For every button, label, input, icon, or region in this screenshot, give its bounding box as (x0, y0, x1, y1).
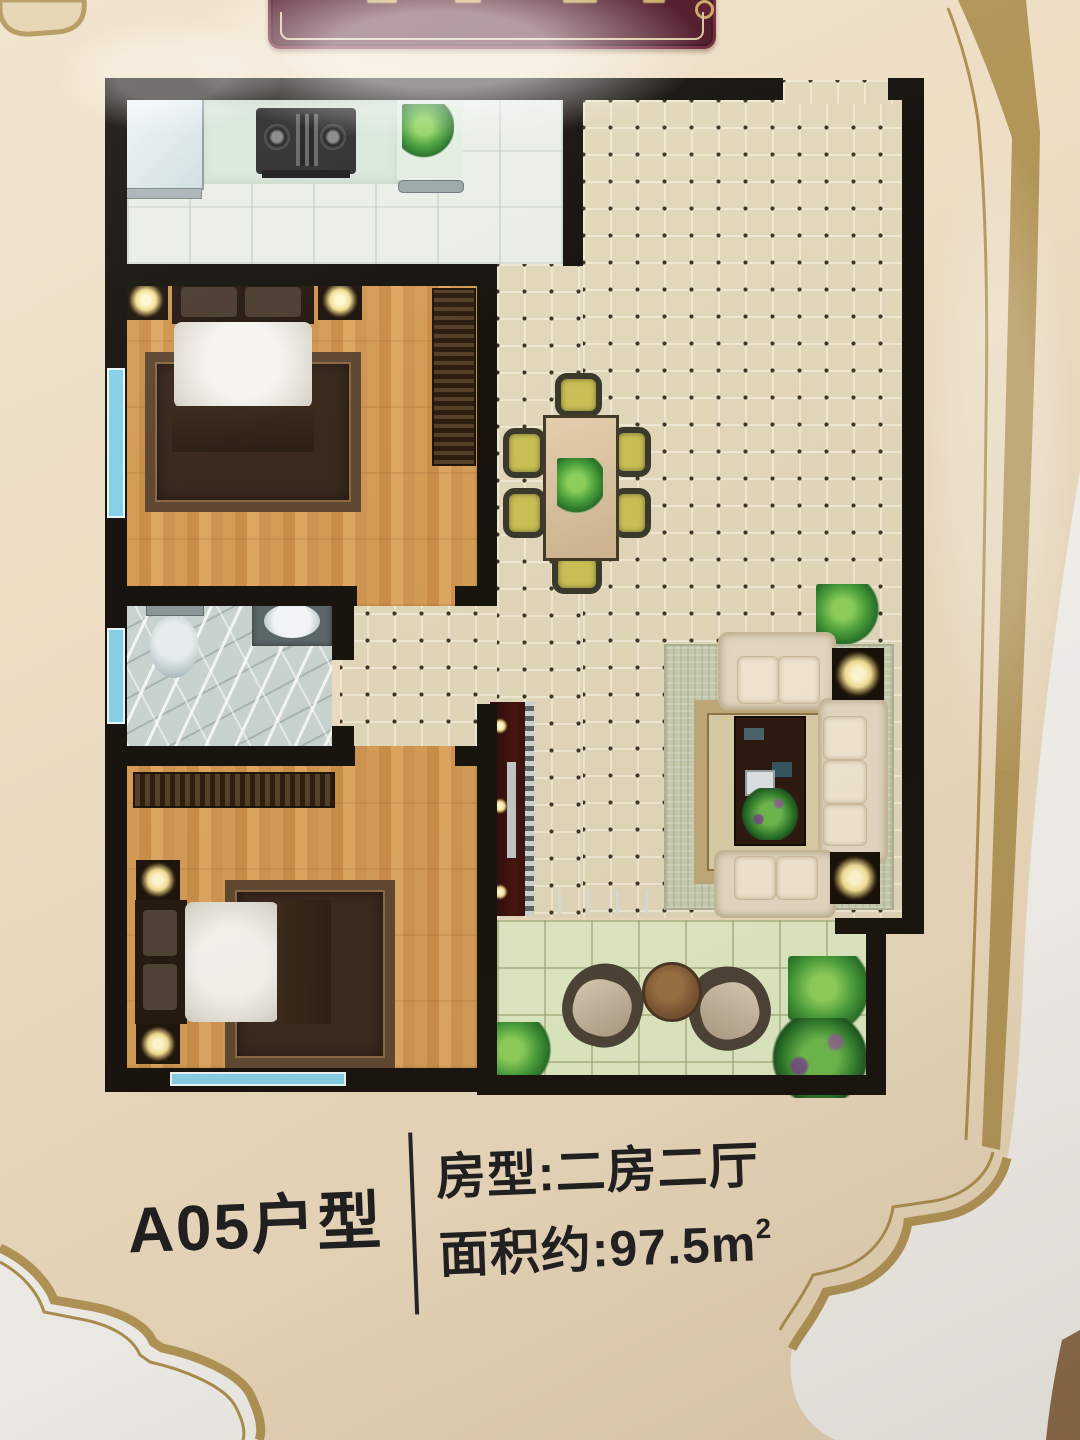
remote-item (744, 728, 764, 740)
bed-pillow (143, 964, 177, 1010)
wall-top (105, 78, 783, 100)
bed-pillow (245, 287, 301, 317)
wall-bedroom1-right (477, 264, 497, 606)
slide-door-tick (587, 890, 590, 914)
tv-icon (507, 762, 516, 858)
wall-living-divider (477, 704, 497, 918)
nightstand-icon (124, 280, 168, 320)
dining-table-icon (543, 415, 619, 561)
entry-floor (783, 80, 902, 104)
sofa-cushion (737, 656, 779, 704)
stove-base (262, 170, 350, 178)
room-type-label: 房型:二房二厅 (434, 1125, 760, 1209)
wall-balcony-right (866, 930, 886, 1095)
caption-divider (408, 1132, 419, 1314)
coffee-table-icon (734, 716, 806, 846)
slide-door-tick (616, 890, 619, 914)
chair-seat (694, 976, 765, 1046)
bed-pillow (143, 910, 177, 956)
side-table-icon (830, 852, 880, 904)
bed-pillow (181, 287, 237, 317)
hallway-floor (340, 586, 497, 746)
unit-label: A05户型 (126, 1170, 385, 1272)
round-table-icon (642, 962, 702, 1022)
chair-icon (503, 428, 546, 478)
tray-item (772, 762, 792, 777)
stove-icon (256, 108, 356, 174)
poster-photo: A05户型 房型:二房二厅 面积约:97.5m2 (0, 0, 1080, 1440)
area-label: 面积约:97.5m2 (437, 1203, 774, 1288)
wall-bedroom1-door-stub (455, 586, 497, 606)
stove-grill (296, 114, 318, 166)
nightstand-icon (136, 1024, 180, 1064)
chair-icon (503, 488, 546, 538)
centerpiece-plant-icon (557, 458, 603, 516)
sink-icon (120, 98, 204, 190)
washbasin-icon (264, 604, 320, 638)
bedroom2-window (170, 1072, 346, 1086)
side-lamp-icon (833, 855, 877, 901)
toilet-bowl (150, 616, 198, 678)
flower-bouquet-icon (741, 788, 799, 840)
wall-balcony-left (477, 918, 497, 1095)
side-table-icon (832, 648, 884, 700)
sink-base (122, 188, 202, 199)
bedroom1-window (107, 368, 125, 518)
bed-footer-blanket (172, 406, 314, 452)
side-lamp-icon (835, 651, 881, 697)
nightstand-icon (136, 860, 180, 900)
area-superscript: 2 (755, 1213, 773, 1245)
caption-block: A05户型 房型:二房二厅 面积约:97.5m2 (76, 1103, 984, 1357)
area-text: 面积约:97.5m (438, 1215, 757, 1283)
bed-footer-blanket (277, 900, 331, 1024)
bathroom-window (107, 628, 125, 724)
lamp-icon (322, 282, 358, 318)
sofa-cushion (823, 760, 867, 804)
sofa-icon (714, 850, 836, 918)
nightstand-icon (318, 280, 362, 320)
wardrobe-icon (133, 772, 335, 808)
kitchen-bench (398, 180, 464, 193)
bed-duvet (185, 902, 279, 1022)
burner-left (264, 124, 290, 150)
chair-seat (567, 973, 638, 1043)
lamp-icon (140, 1026, 176, 1062)
sofa-cushion (823, 716, 867, 760)
kitchen-plant-icon (402, 104, 454, 158)
wall-right (902, 78, 924, 920)
wall-left (105, 78, 127, 1092)
bed-duvet (174, 322, 312, 408)
burner-right (320, 124, 346, 150)
bedroom1-bed-icon (172, 280, 314, 452)
wall-bedroom2-top (105, 746, 355, 766)
sofa-cushion (778, 656, 820, 704)
sofa-icon (818, 698, 888, 864)
sofa-cushion (823, 804, 867, 846)
sofa-cushion (734, 856, 776, 900)
wall-bedroom1-bottom (127, 586, 357, 606)
sofa-icon (718, 632, 836, 710)
wardrobe-icon (432, 288, 476, 466)
wall-kitchen-divider (563, 100, 583, 266)
lamp-icon (128, 282, 164, 318)
cabinet-trim (525, 702, 534, 916)
wall-kitchen-bottom (105, 264, 493, 286)
lamp-icon (140, 862, 176, 898)
sofa-cushion (776, 856, 818, 900)
wall-bathroom-right-upper (332, 592, 354, 660)
bedroom2-bed-icon (135, 900, 331, 1024)
wall-balcony-bottom (477, 1075, 886, 1095)
slide-door-tick (645, 890, 648, 914)
slide-door-tick (558, 890, 561, 914)
chair-icon (555, 373, 602, 417)
